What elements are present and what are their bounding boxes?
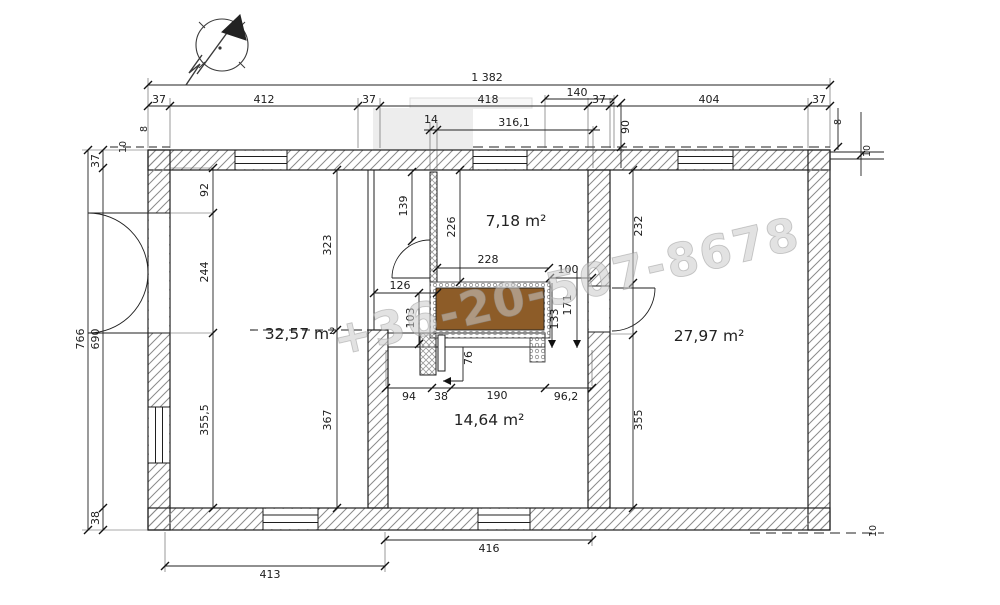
room-label-bottom: 14,64 m² <box>454 411 525 429</box>
window-left <box>148 407 170 463</box>
porch-step <box>410 98 532 108</box>
dim-10-bottom-right: 10 <box>868 525 879 537</box>
dim-416: 416 <box>479 542 500 555</box>
wall-right <box>808 150 830 530</box>
window-bottom-2 <box>478 508 530 530</box>
window-top-3 <box>678 150 733 170</box>
dim-10-left: 10 <box>118 141 129 153</box>
dim-38-left: 38 <box>89 511 102 525</box>
dim-38-door: 38 <box>434 390 448 403</box>
window-top-2 <box>473 150 527 170</box>
room-label-hall-top: 7,18 m² <box>486 212 547 230</box>
dim-404: 404 <box>699 93 720 106</box>
dim-140: 140 <box>567 86 588 99</box>
dim-8-right: 8 <box>833 119 844 125</box>
dim-total-width: 1 382 <box>471 71 503 84</box>
dim-90: 90 <box>619 120 632 134</box>
room-label-right: 27,97 m² <box>674 327 745 345</box>
floor-plan-page: 1 382 37 412 37 418 140 37 404 37 14 316… <box>0 0 1000 605</box>
dim-226: 226 <box>445 217 458 238</box>
insulation-step <box>530 338 545 362</box>
compass-center-dot <box>218 46 221 49</box>
wall-left <box>148 150 170 530</box>
porch-slab <box>373 108 473 150</box>
dim-76: 76 <box>462 351 475 365</box>
dim-10-right: 10 <box>862 145 873 157</box>
dim-92: 92 <box>198 183 211 197</box>
double-door-left <box>88 213 148 333</box>
dim-418: 418 <box>478 93 499 106</box>
dim-412: 412 <box>254 93 275 106</box>
dim-355: 355 <box>632 410 645 431</box>
dim-37-d: 37 <box>812 93 826 106</box>
dim-94: 94 <box>402 390 416 403</box>
dim-413: 413 <box>260 568 281 581</box>
dim-367: 367 <box>321 410 334 431</box>
dim-96-2: 96,2 <box>554 390 579 403</box>
window-top-1 <box>235 150 287 170</box>
dim-690: 690 <box>89 329 102 350</box>
dim-244: 244 <box>198 262 211 283</box>
dim-355-5: 355,5 <box>198 404 211 436</box>
dim-14: 14 <box>424 113 438 126</box>
dim-37-c: 37 <box>592 93 606 106</box>
door-hall-top <box>392 240 430 278</box>
dim-232: 232 <box>632 216 645 237</box>
partition-hall <box>430 172 437 282</box>
dim-316-1: 316,1 <box>498 116 530 129</box>
dim-323: 323 <box>321 235 334 256</box>
dim-126: 126 <box>390 279 411 292</box>
dim-8-left: 8 <box>139 126 150 132</box>
dim-37-left: 37 <box>89 154 102 168</box>
room-label-living: 32,57 m² <box>265 325 336 343</box>
wall-mid-right <box>588 170 610 508</box>
north-compass <box>186 15 248 85</box>
dim-766: 766 <box>74 329 87 350</box>
dim-228: 228 <box>478 253 499 266</box>
dim-37-b: 37 <box>362 93 376 106</box>
dim-37-a: 37 <box>152 93 166 106</box>
floor-plan-canvas: 1 382 37 412 37 418 140 37 404 37 14 316… <box>0 0 1000 605</box>
doorway-left <box>148 213 170 333</box>
window-bottom-1 <box>263 508 318 530</box>
dim-139: 139 <box>397 196 410 217</box>
dim-190: 190 <box>487 389 508 402</box>
